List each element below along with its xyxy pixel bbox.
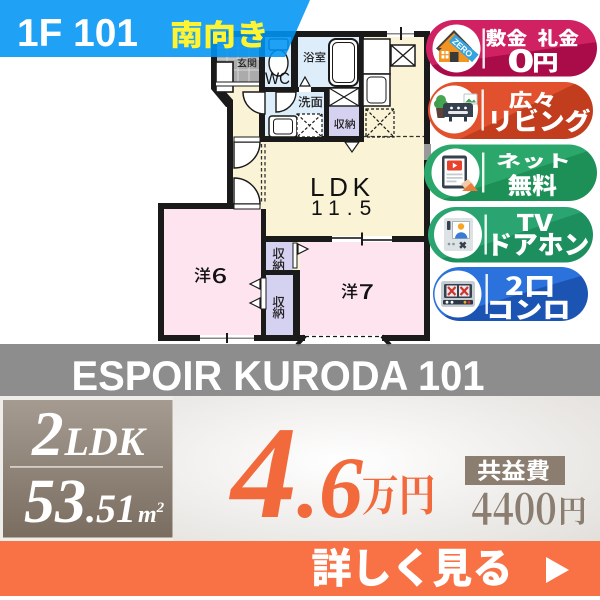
svg-text:1F 101: 1F 101 (17, 12, 138, 55)
svg-text:11.5: 11.5 (311, 197, 378, 220)
svg-text:WC: WC (265, 69, 290, 88)
svg-text:ESPOIR KURODA 101: ESPOIR KURODA 101 (72, 352, 485, 399)
